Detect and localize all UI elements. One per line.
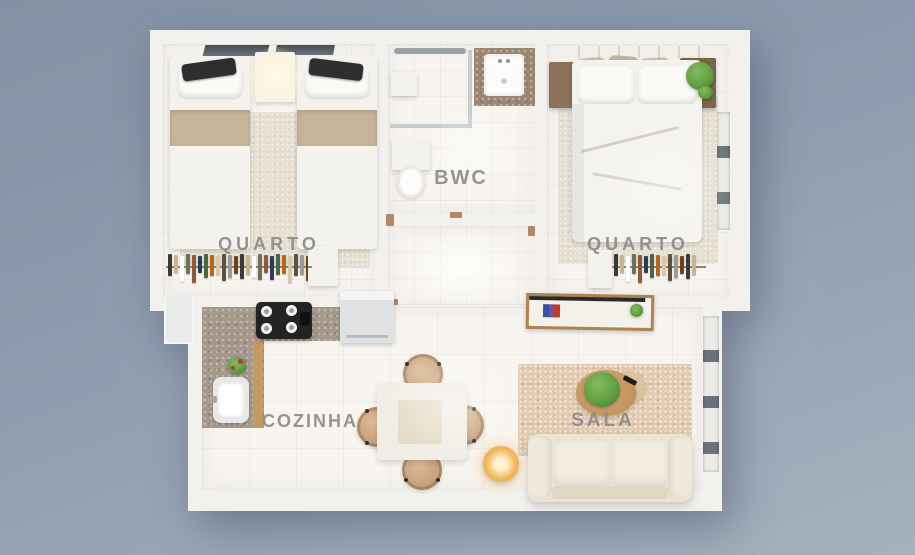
exterior-door-leaf xyxy=(164,294,194,344)
clothes-item xyxy=(246,255,250,275)
burner xyxy=(261,323,272,334)
clothes-item xyxy=(644,256,648,273)
sofa-cushion xyxy=(554,442,610,486)
clothes-item xyxy=(228,255,232,278)
shower-glass xyxy=(390,124,472,128)
bathroom-sink-icon xyxy=(484,54,524,96)
bedroom-left-label: QUARTO xyxy=(209,234,329,255)
floor-lamp-icon xyxy=(483,446,519,482)
clothes-rack-right xyxy=(614,254,704,288)
plant-icon xyxy=(584,372,620,407)
pillow xyxy=(578,66,634,104)
floor-plan-render: QUARTO BWC QUARTO COZINHA SALA xyxy=(0,0,915,555)
flower-dot xyxy=(231,366,235,370)
fridge-icon xyxy=(340,291,394,343)
shower-shelf xyxy=(391,72,417,96)
table-cloth xyxy=(398,400,442,444)
clothes-item xyxy=(306,256,308,281)
clothes-item xyxy=(174,255,178,273)
headboard xyxy=(560,46,716,58)
clothes-rack-left xyxy=(168,254,308,290)
cooktop-icon xyxy=(256,302,312,339)
nightstand xyxy=(255,52,295,102)
dining-table xyxy=(377,383,467,460)
sofa-arm xyxy=(668,436,692,498)
faucet-dot xyxy=(506,59,510,63)
clothes-item xyxy=(186,254,190,274)
tv-console xyxy=(526,293,655,331)
blanket-band xyxy=(297,110,377,146)
clothes-item xyxy=(270,256,274,280)
clothes-item xyxy=(668,254,672,281)
living-window-icon xyxy=(703,316,719,472)
faucet-dot xyxy=(498,59,502,63)
twin-bed-right xyxy=(297,56,377,249)
sofa-cushion xyxy=(612,442,668,486)
clothes-item xyxy=(662,256,666,275)
books xyxy=(543,304,560,317)
bathroom-label: BWC xyxy=(421,167,501,190)
clothes-item xyxy=(234,256,238,274)
sofa xyxy=(528,434,692,502)
kitchen-sink-icon xyxy=(213,377,249,423)
door-jamb xyxy=(450,212,462,218)
living-room-label: SALA xyxy=(563,410,643,432)
apartment-plan: QUARTO BWC QUARTO COZINHA SALA xyxy=(0,0,915,555)
clothes-item xyxy=(258,254,262,280)
clothes-item xyxy=(276,254,280,275)
clothes-item xyxy=(264,255,268,273)
sofa-arm xyxy=(528,436,552,498)
clothes-item xyxy=(632,254,636,274)
clothes-item xyxy=(650,254,654,278)
clothes-item xyxy=(626,256,630,282)
clothes-item xyxy=(192,255,196,283)
clothes-item xyxy=(300,255,304,275)
double-bed xyxy=(572,60,702,242)
clothes-item xyxy=(686,254,690,279)
drain-dot xyxy=(501,78,507,84)
clothes-item xyxy=(252,256,256,278)
clothes-item xyxy=(198,256,202,273)
tv-icon xyxy=(529,296,645,302)
clothes-item xyxy=(294,254,298,276)
burner xyxy=(286,322,297,333)
flower-dot xyxy=(238,359,243,364)
clothes-item xyxy=(210,255,214,276)
blanket-band xyxy=(170,110,250,146)
plant-icon xyxy=(686,62,714,90)
clothes-item xyxy=(692,255,696,275)
door-jamb xyxy=(528,226,535,236)
sofa-backrest xyxy=(552,486,668,499)
burner xyxy=(261,306,272,317)
door-jamb xyxy=(386,214,394,226)
fridge-handle xyxy=(346,335,388,338)
shower-bar-icon xyxy=(394,48,466,54)
sink-basin xyxy=(218,383,244,417)
kitchen-label: COZINHA xyxy=(250,411,370,432)
clothes-item xyxy=(614,254,618,276)
duvet-fold xyxy=(572,104,584,242)
clothes-item xyxy=(680,256,684,274)
faucet xyxy=(209,396,217,403)
shower-glass xyxy=(468,50,472,128)
bedroom-window-icon xyxy=(717,112,730,230)
hallway-floor xyxy=(388,226,535,309)
clothes-item xyxy=(620,255,624,273)
clothes-item xyxy=(240,254,244,279)
clothes-item xyxy=(216,256,220,275)
plant-icon xyxy=(630,304,643,317)
clothes-item xyxy=(656,255,660,276)
clothes-item xyxy=(180,256,184,282)
closet-shelf xyxy=(588,250,612,288)
burner xyxy=(286,305,297,316)
kettle xyxy=(300,312,310,326)
clothes-item xyxy=(204,254,208,278)
clothes-item xyxy=(168,254,172,276)
plant-icon xyxy=(698,86,713,99)
duvet xyxy=(572,104,702,242)
twin-bed-left xyxy=(170,56,250,249)
bedroom-right-label: QUARTO xyxy=(578,234,698,255)
clothes-item xyxy=(282,255,286,274)
clothes-item xyxy=(674,255,678,278)
clothes-item xyxy=(288,256,292,283)
clothes-item xyxy=(222,254,226,281)
clothes-item xyxy=(638,255,642,283)
